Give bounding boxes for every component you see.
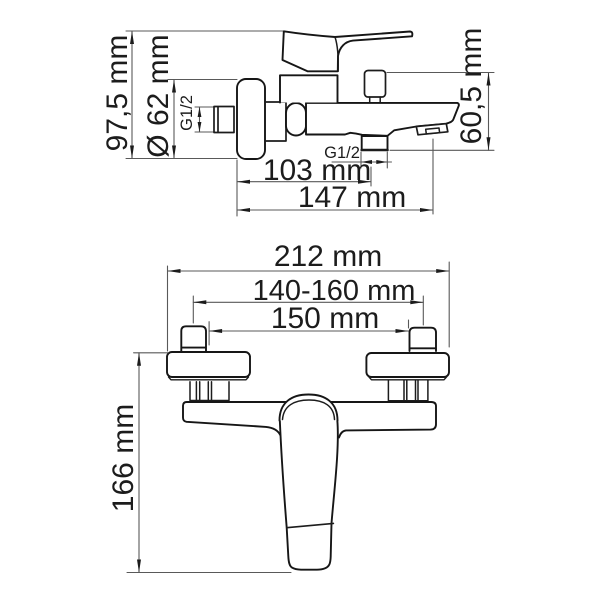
svg-text:166 mm: 166 mm xyxy=(107,404,140,512)
svg-text:G1/2: G1/2 xyxy=(178,95,196,131)
svg-text:Ø 62 mm: Ø 62 mm xyxy=(142,34,175,157)
svg-text:97,5 mm: 97,5 mm xyxy=(101,35,134,152)
svg-text:150 mm: 150 mm xyxy=(271,302,379,335)
svg-text:60,5 mm: 60,5 mm xyxy=(455,28,488,145)
svg-text:147 mm: 147 mm xyxy=(298,181,406,214)
svg-text:212 mm: 212 mm xyxy=(274,240,382,273)
